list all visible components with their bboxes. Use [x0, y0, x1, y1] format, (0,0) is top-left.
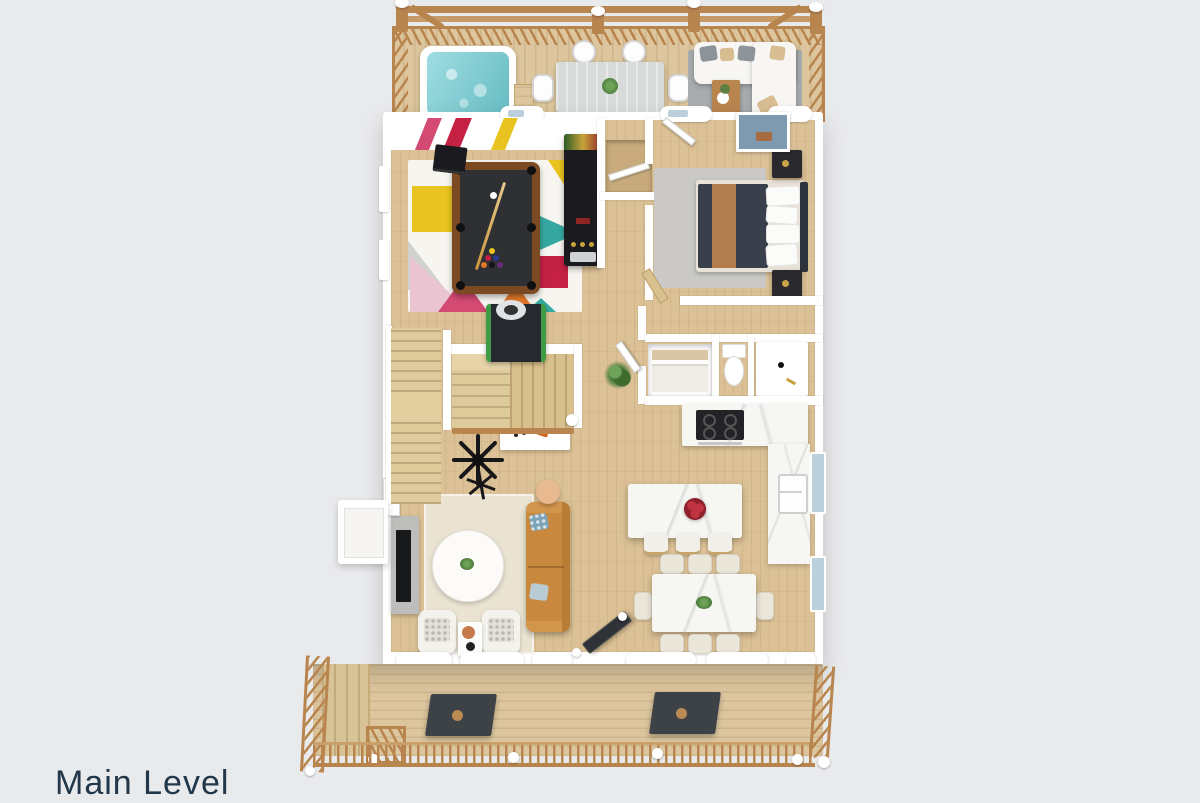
dining-chair [660, 554, 684, 574]
cue-ball [490, 192, 497, 199]
score-plate [570, 252, 596, 262]
umbrella-hole [676, 708, 687, 719]
television [396, 530, 411, 602]
door-cap [618, 612, 627, 621]
stripe-yellow [489, 118, 520, 150]
deck-railing-bottom [313, 742, 815, 767]
linen-closet [648, 344, 712, 396]
bay-window-inner [344, 508, 384, 558]
post-cap [591, 6, 605, 16]
burner [724, 427, 737, 440]
outdoor-chair [532, 74, 554, 102]
wall [680, 296, 823, 305]
burner [703, 414, 716, 427]
side-stairs-landing [391, 392, 441, 420]
plant [720, 84, 730, 94]
bathroom-vanity [756, 342, 808, 396]
stair-flight-winder [510, 354, 572, 430]
pergola-beam [398, 16, 818, 22]
window [379, 240, 389, 280]
black-plant-small [466, 470, 496, 500]
cooktop [696, 410, 744, 440]
post-cap [508, 752, 519, 763]
window-glass [810, 556, 826, 612]
deck-railing-left [392, 26, 408, 122]
wall [748, 334, 754, 396]
dining-chair [660, 634, 684, 654]
wall [645, 118, 653, 164]
wall [600, 192, 656, 200]
door-glass [508, 110, 524, 117]
closet-shelf [652, 364, 708, 392]
throw-pillow-gray [699, 45, 718, 62]
dark-vase [466, 642, 475, 651]
dining-chair [688, 634, 712, 654]
dining-chair [688, 554, 712, 574]
dining-chair [716, 634, 740, 654]
oven-handle [698, 442, 742, 445]
table-plant [460, 558, 474, 570]
bed-pillow [766, 224, 800, 244]
stair-wall [443, 330, 451, 430]
lamp [782, 160, 789, 167]
bar-stool [644, 532, 668, 555]
armchair [418, 610, 456, 654]
bed-pillow [765, 205, 798, 225]
bar-stool [676, 532, 700, 555]
bed-throw-blanket [712, 184, 736, 268]
throw-pillow-blue [529, 513, 550, 532]
billiard-ball [493, 255, 499, 261]
billiard-ball [481, 262, 487, 268]
throw-pillow-tan [769, 45, 786, 61]
pocket [456, 281, 465, 290]
corner-tv [432, 144, 467, 175]
wall [712, 334, 719, 396]
wall [645, 334, 823, 342]
billiard-ball [485, 255, 491, 261]
post-cap [792, 754, 803, 765]
terracotta-vase [462, 626, 475, 639]
dining-centerpiece-plant [696, 596, 712, 609]
outdoor-chair [622, 40, 646, 64]
arcade-label-red [576, 218, 590, 224]
bed-pillow [765, 243, 798, 267]
pool-table-felt [460, 170, 532, 286]
toilet-bowl [724, 356, 744, 386]
outdoor-chair [572, 40, 596, 64]
post-cap [809, 2, 823, 12]
post-cap [652, 748, 663, 759]
stair-bottom-rail [452, 428, 574, 434]
pool-table [452, 162, 540, 294]
bed-pillow [765, 185, 800, 207]
burner [724, 414, 737, 427]
table-centerpiece-plant [602, 78, 618, 94]
potted-plant [604, 360, 632, 390]
book-stack [756, 132, 772, 141]
newel-cap [566, 414, 578, 426]
pocket [527, 166, 536, 175]
billiard-ball [497, 262, 503, 268]
fruit-bowl [684, 498, 706, 520]
throw-pillow-gray [737, 45, 755, 62]
hot-tub-water [427, 52, 509, 116]
bar-stool [708, 532, 732, 555]
post-cap [305, 766, 315, 776]
door-cap [572, 648, 581, 657]
billiard-ball [489, 262, 495, 268]
window-glass [810, 452, 826, 514]
armchair-cushion [488, 618, 514, 642]
headboard [800, 182, 808, 272]
knob [589, 242, 594, 247]
burner [703, 427, 716, 440]
closet-shelf [652, 350, 708, 360]
side-stairs-upper [391, 328, 441, 392]
side-stairs-lower [391, 420, 441, 504]
outdoor-chair [668, 74, 690, 102]
billiard-ball [489, 248, 495, 254]
sink-drain [778, 362, 784, 368]
throw-pillow-tan [720, 48, 735, 62]
arcade-hoop [504, 305, 518, 315]
dining-chair [716, 554, 740, 574]
sofa-seam [528, 566, 564, 568]
throw-pillow-lightblue [529, 583, 549, 601]
pocket [527, 223, 536, 232]
pocket [527, 281, 536, 290]
knob [580, 242, 585, 247]
armchair-cushion [424, 618, 450, 642]
pocket [456, 223, 465, 232]
kitchen-sink [778, 474, 808, 514]
post-cap [818, 756, 830, 768]
peach-side-table [536, 480, 560, 504]
deck-railing-right [809, 26, 825, 122]
dining-chair [634, 592, 652, 620]
door-glass [668, 110, 688, 117]
window [379, 166, 389, 212]
knob [571, 242, 576, 247]
level-caption: Main Level [55, 764, 229, 803]
sink-divider [780, 491, 802, 493]
lamp [782, 280, 789, 287]
armchair [482, 610, 520, 654]
dining-chair [756, 592, 774, 620]
umbrella-hole [452, 710, 463, 721]
pergola-beam [398, 6, 818, 13]
floor-plan-3d: Main Level [0, 0, 1200, 800]
